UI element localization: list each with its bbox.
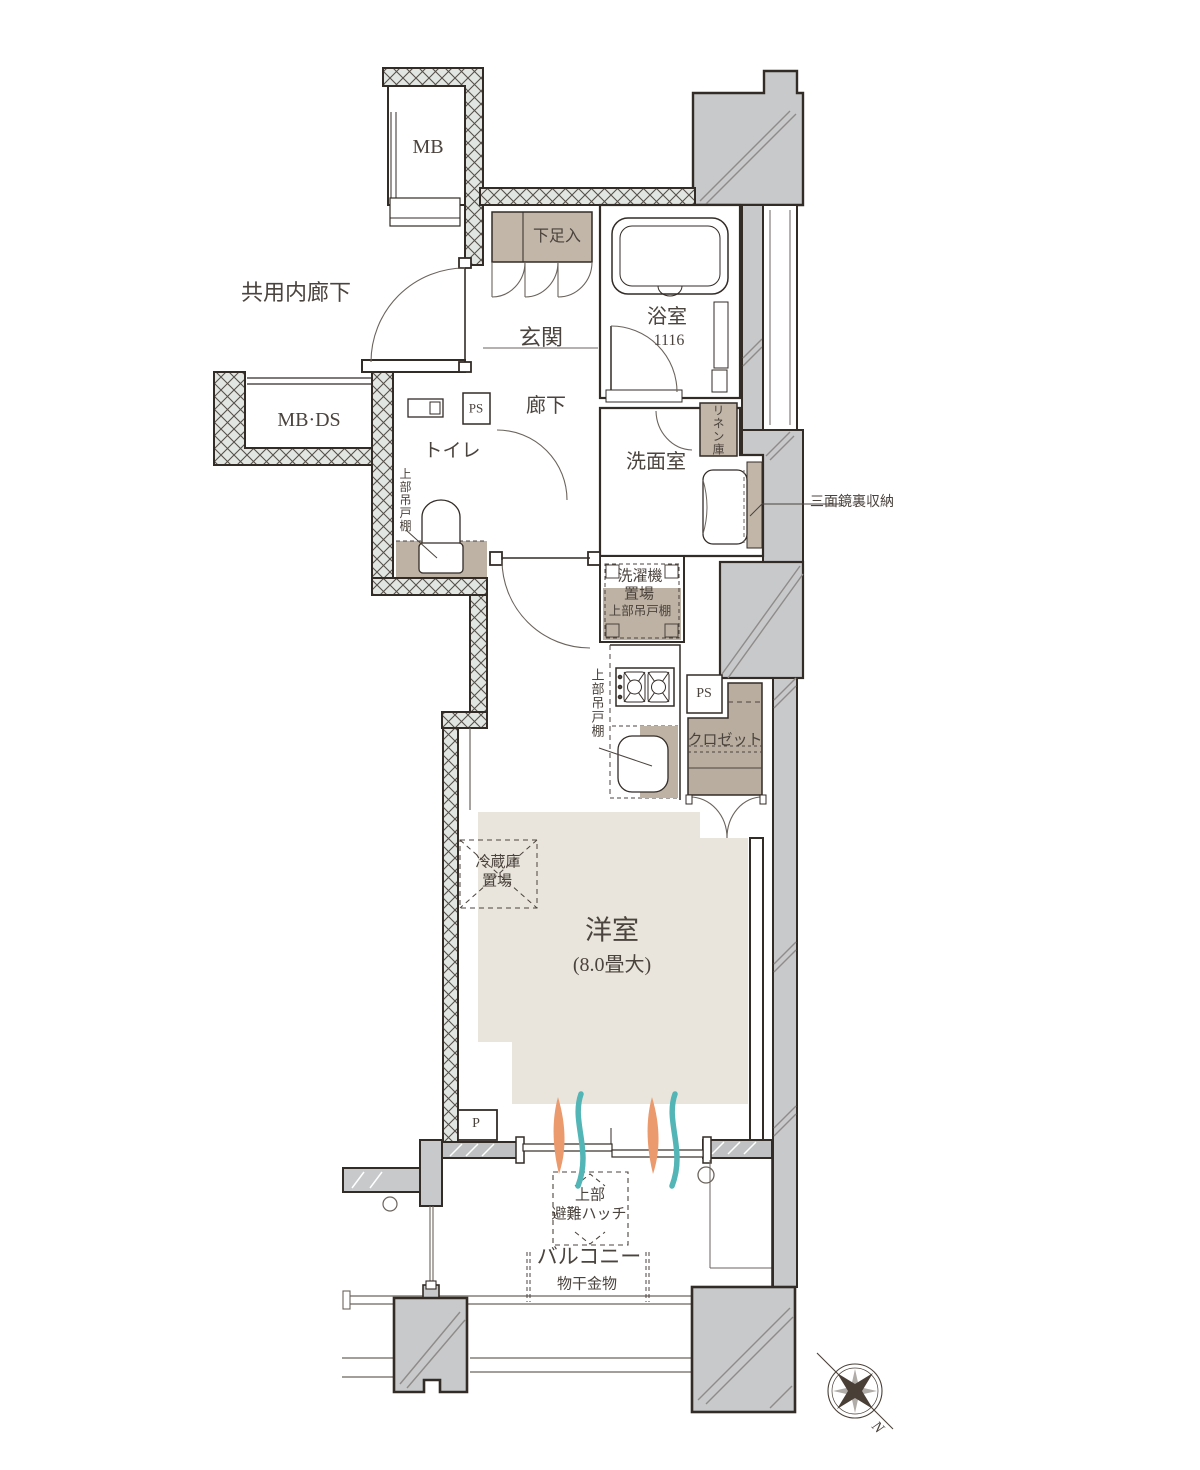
kitchen-area	[599, 645, 680, 800]
balcony-window	[516, 1128, 711, 1163]
label-kitchen-upper-cabinet: 上部吊戸棚	[591, 668, 604, 738]
label-western-room: 洋室	[585, 918, 639, 945]
label-balcony: バルコニー	[537, 1247, 642, 1268]
label-entrance: 玄関	[519, 327, 563, 349]
shoe-cabinet	[492, 212, 592, 297]
hall-door	[490, 552, 600, 648]
label-hatch-line1: 上部	[575, 1189, 605, 1204]
balcony-divider	[430, 1206, 433, 1284]
flame-symbols	[554, 1097, 659, 1174]
label-ps-lower: PS	[696, 687, 712, 701]
bathroom-area	[600, 205, 740, 402]
entrance-area	[362, 258, 598, 372]
label-mb: MB	[412, 137, 443, 157]
label-bathroom: 浴室	[647, 307, 687, 327]
label-western-room-size: (8.0畳大)	[573, 955, 651, 975]
label-washer-line3: 上部吊戸棚	[609, 605, 672, 618]
label-hallway: 廊下	[526, 396, 566, 416]
toilet-area	[396, 399, 567, 577]
toilet-door-arc	[497, 430, 567, 500]
right-wall-window	[763, 205, 797, 430]
label-closet: クロゼット	[687, 734, 762, 749]
label-ps-upper: PS	[469, 402, 483, 415]
floor-plan-page: 共用内廊下 MB MB·DS 下足入 玄関 浴室 1116 廊下 PS トイレ …	[0, 0, 1200, 1470]
label-linen-closet: リネン庫	[712, 404, 724, 456]
toilet-bowl	[422, 500, 460, 545]
meter-boxes	[247, 86, 465, 384]
label-washer-line2: 置場	[624, 588, 654, 603]
label-toilet: トイレ	[423, 442, 480, 461]
label-toilet-upper-cabinet: 上部吊戸棚	[399, 468, 411, 533]
label-fridge-line2: 置場	[482, 875, 512, 890]
label-shared-corridor: 共用内廊下	[241, 282, 351, 304]
compass-rose	[817, 1353, 893, 1429]
label-hatch-line2: 避難ハッチ	[551, 1208, 626, 1223]
label-fridge-line1: 冷蔵庫	[475, 856, 520, 871]
vanity-basin	[703, 470, 747, 544]
label-washer-line1: 洗濯機	[617, 570, 662, 585]
label-mirror-storage: 三面鏡裏収納	[810, 496, 894, 510]
label-shoe-cabinet: 下足入	[533, 229, 581, 245]
kitchen-sink	[618, 736, 668, 792]
label-mb-ds: MB·DS	[277, 410, 340, 430]
label-drying-hardware: 物干金物	[557, 1278, 617, 1293]
label-bathroom-size: 1116	[654, 333, 685, 349]
label-washroom: 洗面室	[626, 452, 686, 472]
label-pipe-p: P	[472, 1117, 480, 1131]
